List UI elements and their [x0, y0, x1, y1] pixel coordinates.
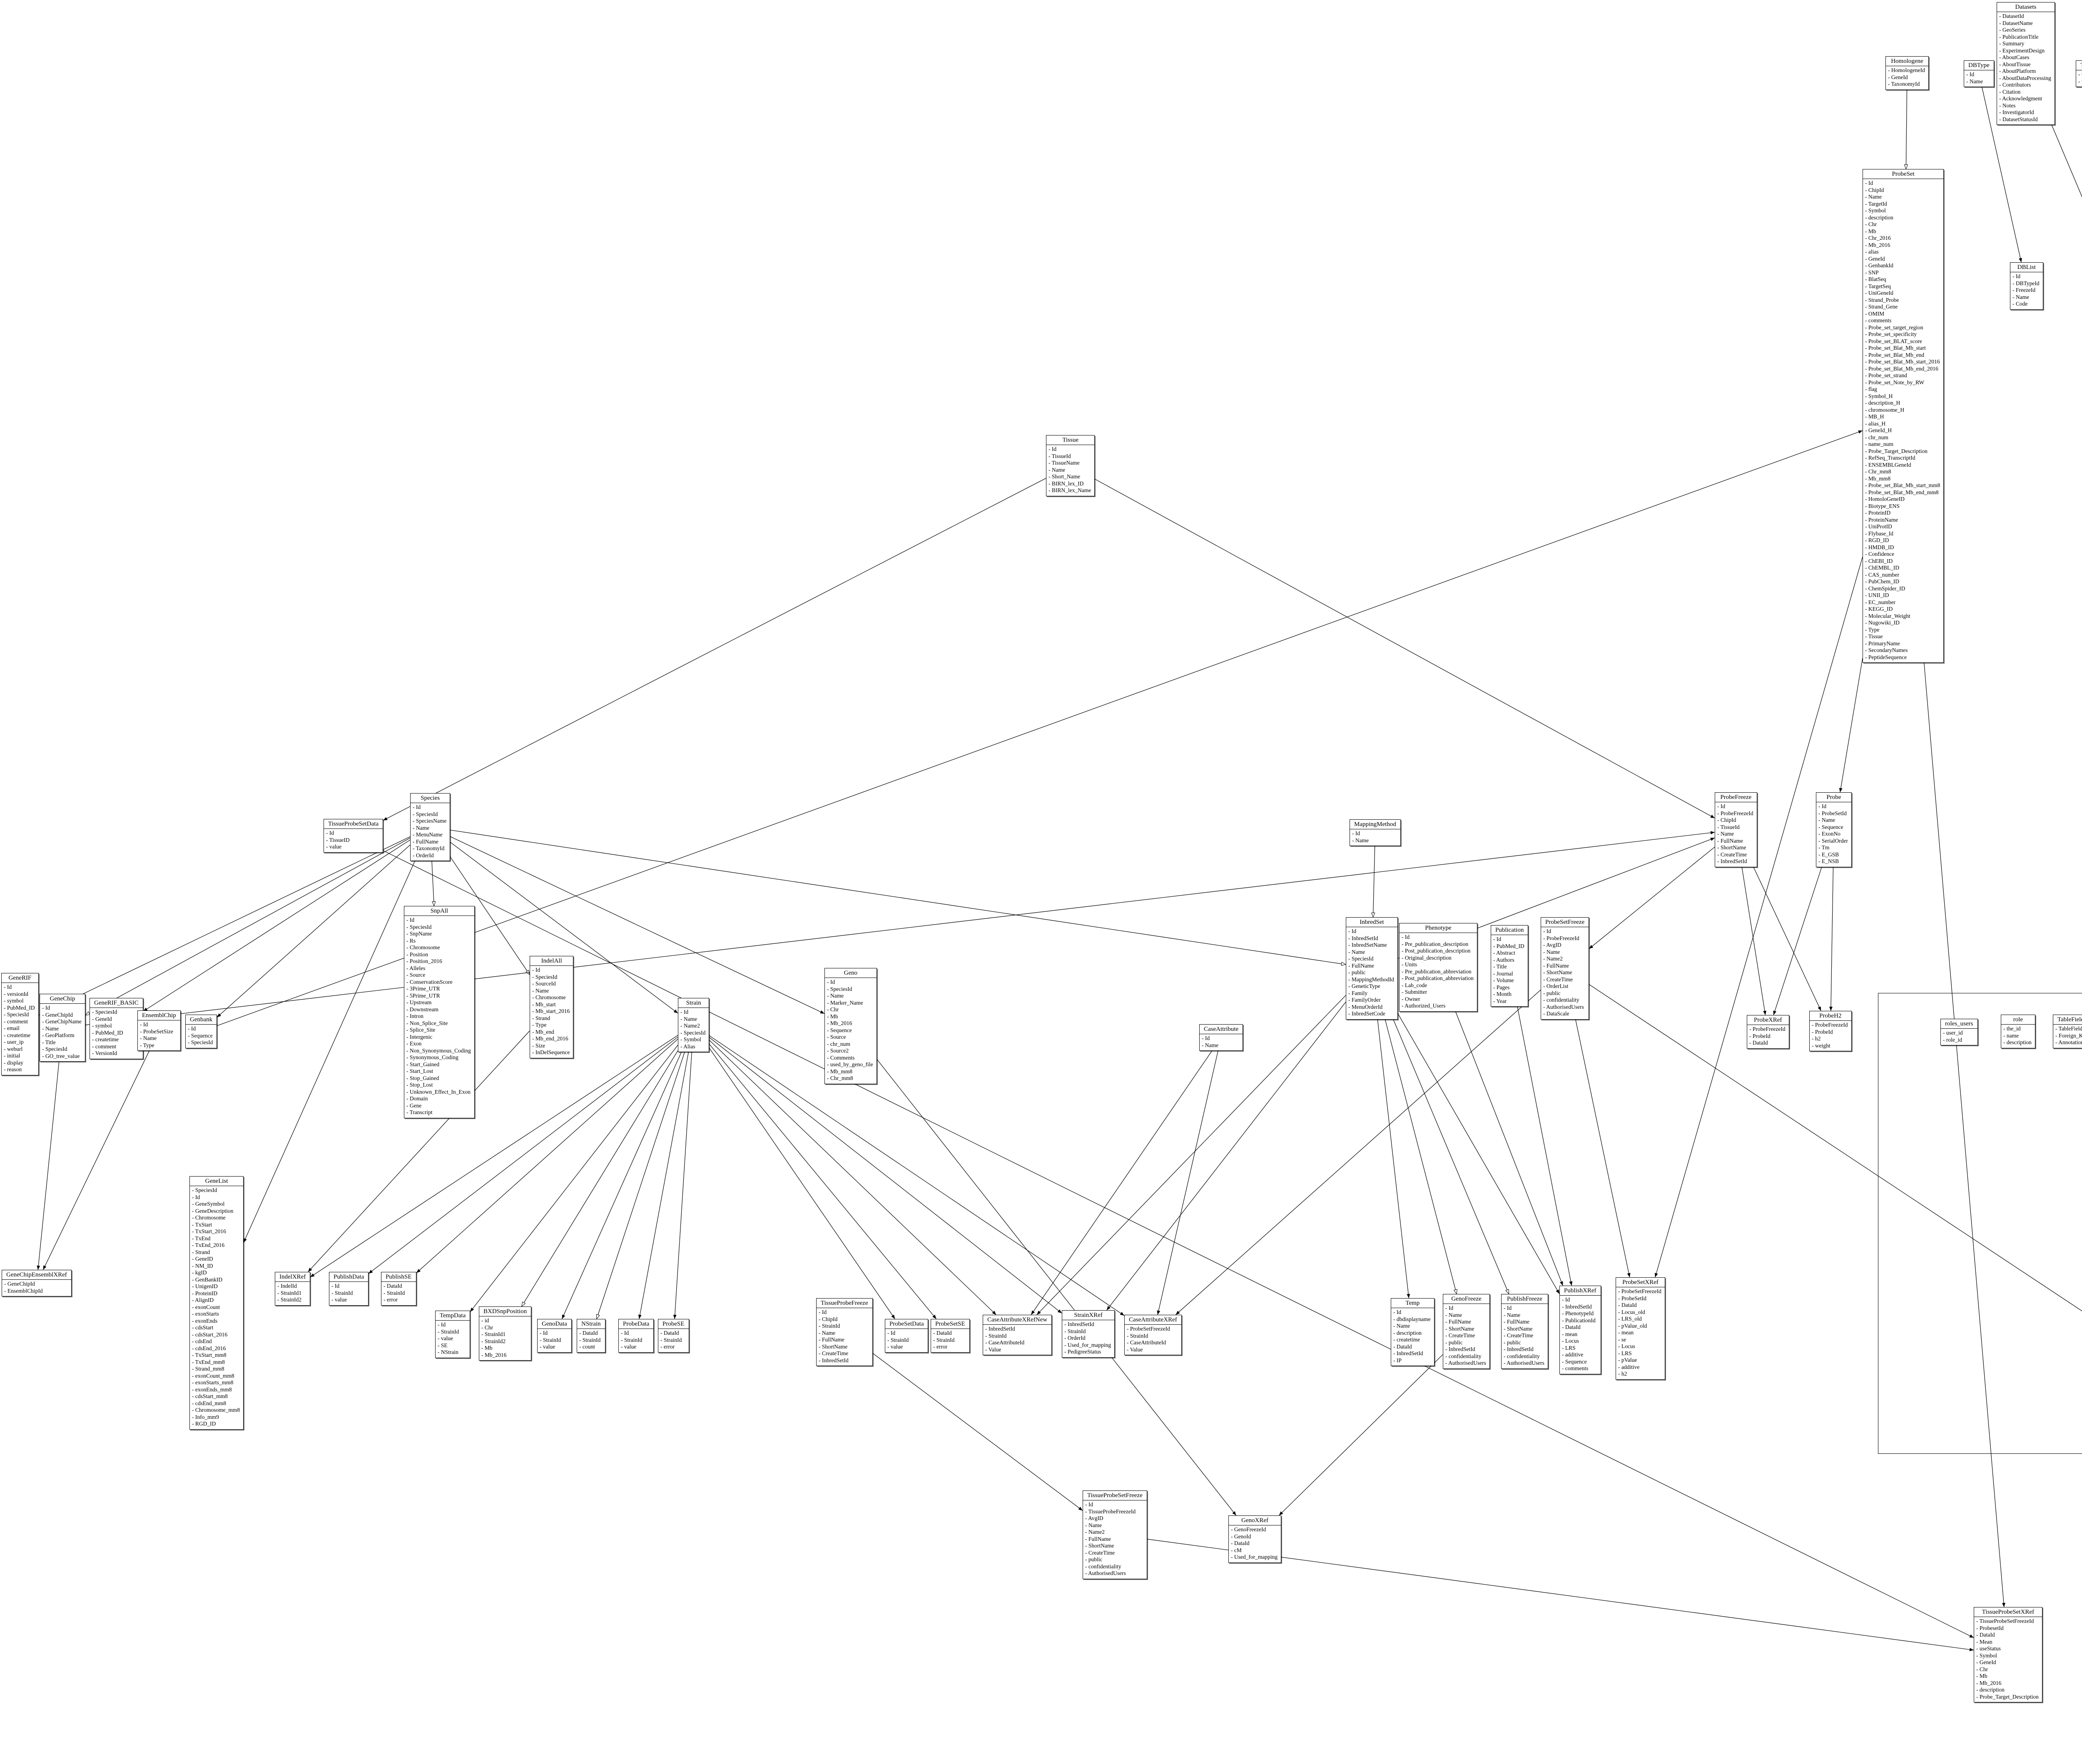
field-item: ProbeFreezeId [1543, 935, 1585, 942]
field-item: Id [540, 1330, 568, 1337]
field-item: count [579, 1344, 602, 1351]
field-item: StrainId [384, 1290, 413, 1297]
field-item: CreateTime [819, 1350, 869, 1357]
field-item: StrainId [1064, 1328, 1111, 1335]
field-list: GeneChipIdEnsemblChipId [2, 1280, 71, 1296]
field-item: ProbesetId [1976, 1625, 2039, 1632]
field-item: Sequence [1562, 1358, 1597, 1366]
field-item: DataId [1749, 1040, 1786, 1047]
field-item: confidentiality [1504, 1353, 1544, 1360]
field-item: Mb_2016 [481, 1352, 528, 1359]
field-item: AuthorisedUsers [1543, 1004, 1585, 1011]
field-item: TissueProbeSetFreezeId [1976, 1618, 2039, 1625]
table-PublishFreeze: PublishFreezeIdNameFullNameShortNameCrea… [1501, 1294, 1548, 1369]
field-item: PubMed_ID [92, 1030, 139, 1037]
edge-GenoFreeze-GenoXRef [1279, 1354, 1443, 1515]
edge-CaseAttribute-CaseAttributeXRefNew [1031, 1051, 1212, 1315]
field-item: LRS_old [1618, 1316, 1661, 1323]
field-item: initial [4, 1052, 35, 1060]
field-item: HomoloGeneID [1865, 496, 1940, 503]
field-list: IdProbeSetSizeNameType [138, 1020, 180, 1050]
field-item: Id [1818, 803, 1848, 810]
field-item: Chromosome [192, 1214, 240, 1222]
field-item: Chr [827, 1006, 873, 1013]
field-list: IdNameName2SpeciesIdSymbolAlias [678, 1008, 709, 1052]
table-role: rolethe_idnamedescription [2001, 1015, 2035, 1048]
field-item: InbredSetCode [1348, 1010, 1394, 1018]
table-PublishXRef: PublishXRefIdInbredSetIdPhenotypeIdPubli… [1559, 1286, 1601, 1374]
field-list: TissueProbeSetFreezeIdProbesetIdDataIdMe… [1974, 1617, 2042, 1702]
field-item: EnsemblChipId [4, 1288, 68, 1295]
field-item: cdsStart_2016 [192, 1331, 240, 1339]
table-GenoFreeze: GenoFreezeIdNameFullNameShortNameCreateT… [1443, 1294, 1490, 1369]
field-item: ChEBI_ID [1865, 558, 1940, 565]
field-item: Position [406, 951, 471, 958]
field-item: Mb_end [532, 1029, 570, 1036]
field-item: type [2078, 71, 2082, 78]
field-item: Unknown_Effect_In_Exon [406, 1089, 471, 1096]
field-item: AvgID [1543, 942, 1585, 949]
table-title: Geno [825, 968, 877, 978]
field-item: OrderId [1064, 1335, 1111, 1342]
field-item: Comments [827, 1055, 873, 1062]
field-item: Probe_set_strand [1865, 372, 1940, 379]
field-item: StrainId2 [481, 1338, 528, 1345]
field-item: Domain [406, 1095, 471, 1102]
table-MappingMethod: MappingMethodIdName [1350, 819, 1401, 846]
field-item: ShortName [1085, 1543, 1143, 1550]
field-item: AboutPlatform [1999, 68, 2051, 75]
field-item: Name [680, 1016, 705, 1023]
table-ProbeH2: ProbeH2ProbeFreezeIdProbeIdh2weight [1809, 1011, 1852, 1051]
field-item: Strand [532, 1015, 570, 1022]
table-Species: SpeciesIdSpeciesIdSpeciesNameNameMenuNam… [410, 793, 450, 861]
table-BXDSnpPosition: BXDSnpPositionidChrStrainId1StrainId2MbM… [479, 1306, 531, 1361]
field-item: ProbeId [1812, 1029, 1848, 1036]
field-item: FullName [1504, 1319, 1544, 1326]
field-item: GeneId [92, 1016, 139, 1023]
field-item: SpeciesName [413, 818, 446, 825]
field-item: Id [192, 1194, 240, 1201]
field-list: IdChipIdNameTargetIdSymboldescriptionChr… [1863, 179, 1943, 662]
field-item: value [540, 1344, 568, 1351]
table-ProbeData: ProbeDataIdStrainIdvalue [618, 1319, 654, 1353]
table-TableFieldAnnotation: TableFieldAnnotationTableFieldForeign_Ke… [2053, 1015, 2082, 1048]
field-item: Id [621, 1330, 650, 1337]
field-item: ProbeId [1749, 1033, 1786, 1040]
field-item: chromosome_H [1865, 407, 1940, 414]
table-TissueProbeFreeze: TissueProbeFreezeIdChipIdStrainIdNameFul… [816, 1298, 873, 1366]
table-InbredSet: InbredSetIdInbredSetIdInbredSetNameNameS… [1346, 917, 1398, 1020]
field-item: InbredSetId [1717, 858, 1753, 865]
field-item: SpeciesId [42, 1046, 82, 1053]
field-item: Synonymous_Coding [406, 1054, 471, 1061]
field-item: StrainId [621, 1337, 650, 1344]
table-ProbeSetSE: ProbeSetSEDataIdStrainIderror [931, 1319, 970, 1353]
edge-Strain-BXDSnpPosition [522, 1050, 678, 1306]
field-item: cdsStart [192, 1324, 240, 1331]
field-item: value [887, 1344, 924, 1351]
field-item: GenBankID [192, 1276, 240, 1284]
table-ProbeSet: ProbeSetIdChipIdNameTargetIdSymboldescri… [1863, 169, 1944, 663]
table-title: Tissue [1046, 435, 1094, 445]
field-item: Id [331, 1283, 365, 1290]
field-item: NStrain [438, 1349, 466, 1356]
field-item: pValue_old [1618, 1323, 1661, 1330]
table-Strain: StrainIdNameName2SpeciesIdSymbolAlias [678, 998, 709, 1052]
table-title: GenoFreeze [1443, 1294, 1489, 1304]
field-item: Name [1966, 78, 1990, 85]
table-title: DBType [1964, 61, 1994, 70]
field-item: StrainId [985, 1333, 1048, 1340]
field-item: IndelId [277, 1283, 306, 1290]
field-item: Abstract [1493, 950, 1524, 957]
field-item: Value [985, 1346, 1048, 1353]
field-item: DataId [1562, 1324, 1597, 1331]
field-item: ConservationScore [406, 979, 471, 986]
edge-Strain-NStrain [597, 1052, 685, 1319]
field-item: Size [532, 1042, 570, 1050]
field-item: Tissue [1865, 633, 1940, 640]
field-item: MappingMethodId [1348, 976, 1394, 983]
field-item: Name [1048, 467, 1091, 474]
field-item: Sequence [1818, 824, 1848, 831]
field-item: DBTypeId [2012, 280, 2040, 287]
field-item: Chr_mm8 [1865, 468, 1940, 475]
field-item: error [933, 1344, 966, 1351]
field-item: comments [1865, 317, 1940, 324]
field-item: ShortName [1445, 1326, 1486, 1333]
field-item: Id [1445, 1305, 1486, 1312]
field-item: chr_num [827, 1041, 873, 1048]
field-list: IdProbeFreezeIdChipIdTissueIdNameFullNam… [1715, 802, 1757, 867]
field-item: SNP [1865, 269, 1940, 276]
field-item: Start_Lost [406, 1068, 471, 1075]
field-item: GeneChipId [4, 1281, 68, 1288]
table-Homologene: HomologeneHomologeneIdGeneIdTaxonomyId [1885, 56, 1929, 90]
field-item: InbredSetId [985, 1326, 1048, 1333]
field-item: TxEnd_2016 [192, 1242, 240, 1249]
field-item: display [4, 1060, 35, 1067]
field-item: createtime [4, 1032, 35, 1039]
field-list: IdNameFullNameShortNameCreateTimepublicI… [1502, 1304, 1548, 1368]
field-item: Id [1562, 1296, 1597, 1304]
table-title: Genbank [186, 1015, 217, 1025]
field-item: StrainId [1127, 1333, 1178, 1340]
field-item: Value [1127, 1346, 1178, 1353]
field-item: ShortName [819, 1344, 869, 1351]
field-item: Submitter [1402, 989, 1474, 996]
field-list: IdSpeciesIdSourceIdNameChromosomeMb_star… [530, 966, 573, 1058]
table-TraitMetadata: TraitMetadatatypevalue [2076, 60, 2082, 87]
field-item: SourceId [532, 980, 570, 988]
field-list: IdPubMed_IDAbstractAuthorsTitleJournalVo… [1491, 935, 1528, 1006]
field-item: Summary [1999, 40, 2051, 47]
field-item: dbdisplayname [1393, 1316, 1431, 1323]
field-item: Locus [1562, 1338, 1597, 1345]
field-item: comment [92, 1043, 139, 1050]
field-item: TissueName [1048, 460, 1091, 467]
field-item: E_GSB [1818, 851, 1848, 858]
field-item: Id [406, 917, 471, 924]
field-item: value [621, 1344, 650, 1351]
edge-Strain-CaseAttributeXRef [709, 1035, 1124, 1316]
field-item: Notes [1999, 102, 2051, 109]
field-item: StrainId [540, 1337, 568, 1344]
field-item: BlatSeq [1865, 276, 1940, 283]
field-item: ProbeSetId [1618, 1295, 1661, 1302]
table-StrainXRef: StrainXRefInbredSetIdStrainIdOrderIdUsed… [1062, 1310, 1115, 1358]
field-item: PubChem_ID [1865, 578, 1940, 585]
field-item: description [1976, 1687, 2039, 1694]
field-item: Chr_mm8 [827, 1075, 873, 1082]
table-title: ProbeSet [1863, 169, 1943, 179]
table-DBList: DBListIdDBTypeIdFreezeIdNameCode [2010, 262, 2043, 310]
field-item: CreateTime [1717, 851, 1753, 858]
edge-Strain-ProbeSetSE [709, 1044, 936, 1319]
table-GeneList: GeneListSpeciesIdIdGeneSymbolGeneDescrip… [189, 1176, 244, 1430]
field-item: Source2 [827, 1047, 873, 1055]
field-item: AlignID [192, 1297, 240, 1304]
field-item: SpeciesId [532, 974, 570, 981]
field-item: UniProtID [1865, 523, 1940, 530]
field-item: StrainId [933, 1337, 966, 1344]
edge-ProbeSet-Probe [1840, 658, 1863, 792]
field-item: Name [1865, 194, 1940, 201]
field-item: Name [1818, 817, 1848, 824]
table-title: StrainXRef [1062, 1311, 1114, 1320]
field-item: HomologeneId [1888, 67, 1925, 74]
field-item: description [1393, 1330, 1431, 1337]
table-title: Temp [1391, 1299, 1434, 1308]
field-item: Probe_set_BLAT_score [1865, 338, 1940, 345]
field-item: GeneId_H [1865, 427, 1940, 434]
field-item: RGD_ID [192, 1421, 240, 1428]
table-CaseAttributeXRefNew: CaseAttributeXRefNewInbredSetIdStrainIdC… [983, 1315, 1052, 1355]
field-item: SpeciesId [1348, 955, 1394, 963]
field-list: IdGeneChipIdGeneChipNameNameGeoPlatformT… [40, 1004, 85, 1061]
field-item: name [2003, 1033, 2032, 1040]
field-item: OrderList [1543, 983, 1585, 990]
field-item: symbol [92, 1023, 139, 1030]
field-item: AuthorisedUsers [1504, 1360, 1544, 1367]
field-item: Chromosome_mm8 [192, 1407, 240, 1414]
field-item: Chromosome [406, 944, 471, 951]
field-item: MenuOrderId [1348, 1004, 1394, 1011]
field-item: GeneId [1865, 256, 1940, 263]
field-item: InbredSetId [1445, 1346, 1486, 1353]
field-item: Id [1048, 446, 1091, 453]
table-title: GenoXRef [1229, 1516, 1281, 1525]
field-item: Id [1493, 936, 1524, 943]
field-item: Name [413, 825, 446, 832]
table-ProbeSetData: ProbeSetDataIdStrainIdvalue [885, 1319, 928, 1353]
field-item: Name [140, 1035, 177, 1042]
field-item: Units [1402, 961, 1474, 968]
field-item: additive [1562, 1351, 1597, 1358]
field-item: PrimaryName [1865, 640, 1940, 647]
field-item: ProteinID [1865, 510, 1940, 517]
field-item: AuthorisedUsers [1445, 1360, 1486, 1367]
field-item: ChemSpider_ID [1865, 585, 1940, 592]
field-item: DataScale [1543, 1010, 1585, 1018]
field-item: Name [1393, 1323, 1431, 1330]
table-title: TraitMetadata [2076, 61, 2082, 70]
edge-ProbeFreeze-ProbeSetFreeze [1589, 847, 1715, 949]
edge-Strain-ProbeData [639, 1052, 688, 1319]
table-PublishSE: PublishSEDataIdStrainIderror [381, 1272, 416, 1306]
field-item: comment [4, 1018, 35, 1025]
field-item: InbredSetId [819, 1357, 869, 1364]
table-Publication: PublicationIdPubMed_IDAbstractAuthorsTit… [1491, 925, 1528, 1007]
field-item: Symbol [680, 1036, 705, 1043]
field-item: reason [4, 1066, 35, 1073]
field-item: TxStart [192, 1222, 240, 1229]
field-item: Name [1085, 1522, 1143, 1529]
field-item: Biotype_ENS [1865, 503, 1940, 510]
field-item: SpeciesId [680, 1030, 705, 1037]
field-item: TxStart_mm8 [192, 1352, 240, 1359]
field-item: DataId [1231, 1540, 1278, 1547]
field-item: SnpName [406, 931, 471, 938]
field-item: Info_mm9 [192, 1414, 240, 1421]
table-GenoXRef: GenoXRefGenoFreezeIdGenoIdDataIdcMUsed_f… [1228, 1515, 1281, 1563]
field-item: Strand [192, 1249, 240, 1256]
table-TissueProbeSetXRef: TissueProbeSetXRefTissueProbeSetFreezeId… [1974, 1607, 2042, 1702]
field-item: InbredSetId [1562, 1304, 1597, 1311]
field-list: IdDBTypeIdFreezeIdNameCode [2010, 272, 2043, 309]
field-item: DatasetId [1999, 13, 2051, 20]
field-item: Transcript [406, 1109, 471, 1116]
field-item: ProbeFreezeId [1812, 1022, 1848, 1029]
field-item: FullName [1445, 1319, 1486, 1326]
table-title: GeneChip [40, 994, 85, 1004]
field-item: GeneID [192, 1256, 240, 1263]
field-item: FullName [1717, 838, 1753, 845]
field-item: Id [1202, 1035, 1239, 1042]
field-item: Mb_mm8 [1865, 475, 1940, 483]
field-item: PhenotypeId [1562, 1310, 1597, 1317]
field-item: PubMed_ID [1493, 943, 1524, 950]
field-item: GeneChipName [42, 1018, 82, 1025]
field-item: pValue [1618, 1357, 1661, 1364]
table-roles_users: roles_usersuser_idrole_id [1940, 1019, 1978, 1045]
table-title: PublishData [329, 1272, 368, 1282]
field-item: StrainId2 [277, 1296, 306, 1304]
edge-Strain-GenoData [562, 1052, 682, 1319]
edge-ProbeSet-ProbeSetXRef [1655, 557, 1863, 1277]
field-item: StrainId [660, 1337, 685, 1344]
edge-Tissue-TissueProbeSetData [383, 478, 1046, 821]
field-list: DataIdStrainIdcount [577, 1329, 605, 1352]
table-title: PublishSE [381, 1272, 416, 1282]
field-item: Locus_old [1618, 1309, 1661, 1316]
field-item: Chr [1865, 221, 1940, 228]
field-item: StrainId1 [481, 1331, 528, 1338]
edge-Species-GeneRIF_BASIC [143, 840, 410, 1011]
field-item: InbredSetId [1348, 935, 1394, 942]
field-item: Id [42, 1005, 82, 1012]
field-item: TaxonomyId [413, 845, 446, 852]
field-item: user_ip [4, 1039, 35, 1046]
field-item: SpeciesId [406, 924, 471, 931]
field-item: CreateTime [1543, 976, 1585, 983]
field-item: Type [532, 1022, 570, 1029]
field-list: IdSpeciesIdSpeciesNameNameMenuNameFullNa… [411, 803, 450, 861]
relationship-lines [0, 0, 2082, 1764]
field-item: ProbeFreezeId [1717, 810, 1753, 817]
field-item: Id [188, 1025, 213, 1033]
field-item: mean [1562, 1331, 1597, 1338]
field-item: alias [1865, 249, 1940, 256]
field-item: Pre_publication_abbreviation [1402, 968, 1474, 975]
field-item: Journal [1493, 970, 1524, 978]
field-item: Volume [1493, 977, 1524, 984]
field-item: UnigenID [192, 1283, 240, 1290]
field-item: h2 [1618, 1371, 1661, 1378]
table-Temp: TempIddbdisplaynameNamedescriptioncreate… [1391, 1298, 1434, 1366]
field-item: Start_Gained [406, 1061, 471, 1068]
field-list: IdProbeFreezeIdAvgIDNameName2FullNameSho… [1541, 927, 1589, 1019]
field-item: GeoPlatform [42, 1032, 82, 1039]
field-item: Mb [1865, 228, 1940, 235]
field-item: ProbeSetSize [140, 1028, 177, 1035]
field-item: Mean [1976, 1639, 2039, 1646]
field-item: Alleles [406, 965, 471, 972]
field-item: KEGG_ID [1865, 606, 1940, 613]
field-item: Id [887, 1330, 924, 1337]
field-item: GeneSymbol [192, 1201, 240, 1208]
field-item: confidentiality [1543, 997, 1585, 1004]
field-item: FullName [819, 1336, 869, 1344]
field-item: ProbeFreezeId [1749, 1026, 1786, 1033]
table-title: IndelXRef [275, 1272, 310, 1282]
field-list: SpeciesIdIdGeneSymbolGeneDescriptionChro… [190, 1186, 243, 1429]
field-item: Symbol_H [1865, 393, 1940, 400]
field-item: email [4, 1025, 35, 1032]
table-Phenotype: PhenotypeIdPre_publication_descriptionPo… [1399, 923, 1477, 1012]
field-item: Title [1493, 963, 1524, 970]
field-list: DataIdStrainIderror [381, 1282, 416, 1305]
field-list: DataIdStrainIderror [658, 1329, 689, 1352]
field-item: Id [438, 1321, 466, 1329]
field-item: Lab_code [1402, 982, 1474, 989]
field-item: Name2 [1543, 955, 1585, 963]
table-title: ProbeXRef [1747, 1015, 1789, 1025]
field-item: Flybase_Id [1865, 530, 1940, 537]
field-item: Locus [1618, 1343, 1661, 1350]
edge-Strain-ProbeSE [675, 1052, 692, 1319]
field-item: HMDB_ID [1865, 544, 1940, 551]
field-item: Annotation [2055, 1039, 2082, 1046]
field-item: cdsStart_mm8 [192, 1393, 240, 1400]
edge-InbredSet-Temp [1377, 1020, 1409, 1298]
field-item: Name [1504, 1312, 1544, 1319]
edge-Species-Geno [450, 836, 824, 1013]
field-item: AvgID [1085, 1515, 1143, 1522]
edge-TissueProbeFreeze-TissueProbeSetFreeze [873, 1353, 1083, 1510]
field-item: DataId [660, 1330, 685, 1337]
field-list: HomologeneIdGeneIdTaxonomyId [1886, 66, 1928, 90]
field-item: FullName [413, 838, 446, 846]
table-title: Strain [678, 998, 709, 1008]
table-ProbeSetXRef: ProbeSetXRefProbeSetFreezeIdProbeSetIdDa… [1616, 1277, 1665, 1380]
field-item: chr_num [1865, 434, 1940, 441]
field-item: useStatus [1976, 1645, 2039, 1652]
field-item: description [1865, 214, 1940, 221]
field-item: DataId [1618, 1302, 1661, 1309]
field-item: Non_Synonymous_Coding [406, 1047, 471, 1055]
